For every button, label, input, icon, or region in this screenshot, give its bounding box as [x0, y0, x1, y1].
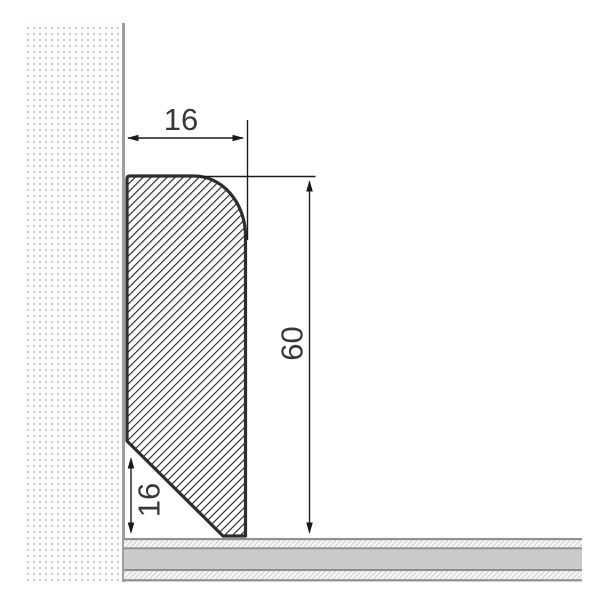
svg-text:60: 60 [275, 326, 310, 360]
svg-text:16: 16 [132, 483, 167, 517]
svg-text:16: 16 [164, 102, 198, 137]
